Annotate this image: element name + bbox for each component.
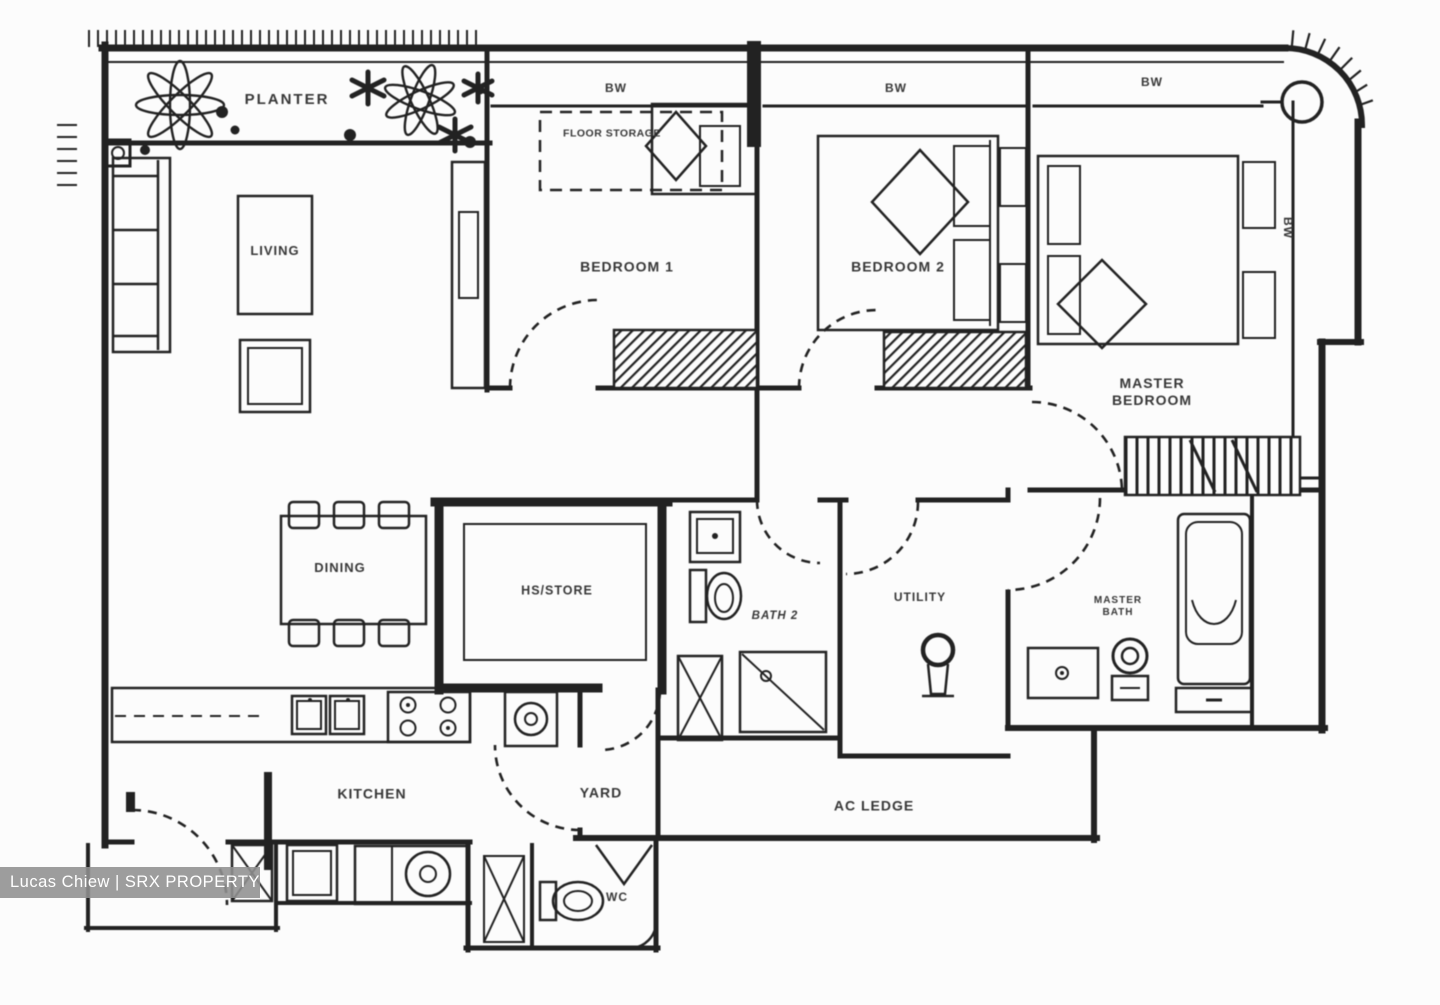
room-label-bedroom1: BEDROOM 1 bbox=[580, 259, 674, 276]
utility-fixtures bbox=[922, 635, 954, 696]
bath2-fixtures bbox=[678, 512, 826, 740]
room-label-utility: UTILITY bbox=[894, 590, 946, 604]
bay-window-label-2: BW bbox=[885, 81, 907, 95]
room-label-dining: DINING bbox=[314, 560, 366, 576]
room-label-bedroom2: BEDROOM 2 bbox=[851, 259, 945, 276]
floorplan-linework bbox=[0, 0, 1440, 1005]
bedroom1-furniture bbox=[540, 104, 757, 388]
living-furniture bbox=[113, 158, 485, 412]
room-label-kitchen: KITCHEN bbox=[337, 786, 406, 803]
kitchen-fixtures bbox=[112, 688, 557, 746]
watermark-banner: Lucas Chiew | SRX PROPERTY bbox=[0, 867, 260, 898]
bay-window-label-3: BW bbox=[1141, 75, 1163, 89]
floorplan-drawing: PLANTER LIVING DINING BW BW BW BW FLOOR … bbox=[0, 0, 1440, 1005]
room-label-wc: WC bbox=[606, 890, 628, 904]
bay-window-label-4: BW bbox=[1281, 217, 1295, 239]
room-label-bath2: BATH 2 bbox=[752, 610, 799, 624]
wc-fixtures bbox=[484, 845, 656, 948]
room-label-ac-ledge: AC LEDGE bbox=[834, 798, 914, 815]
room-label-living: LIVING bbox=[250, 243, 299, 259]
room-label-planter: PLANTER bbox=[245, 91, 330, 109]
interior-walls bbox=[86, 48, 1322, 950]
room-label-yard: YARD bbox=[580, 785, 622, 802]
room-label-floor-storage: FLOOR STORAGE bbox=[563, 128, 661, 141]
master-bedroom-furniture bbox=[1038, 156, 1300, 495]
room-label-hs-store: HS/STORE bbox=[521, 584, 593, 599]
room-label-master-bath: MASTER BATH bbox=[1078, 595, 1158, 619]
bay-window-label-1: BW bbox=[605, 81, 627, 95]
room-label-master-bedroom: MASTER BEDROOM bbox=[1082, 375, 1222, 409]
floorplan-image: PLANTER LIVING DINING BW BW BW BW FLOOR … bbox=[0, 0, 1440, 1005]
